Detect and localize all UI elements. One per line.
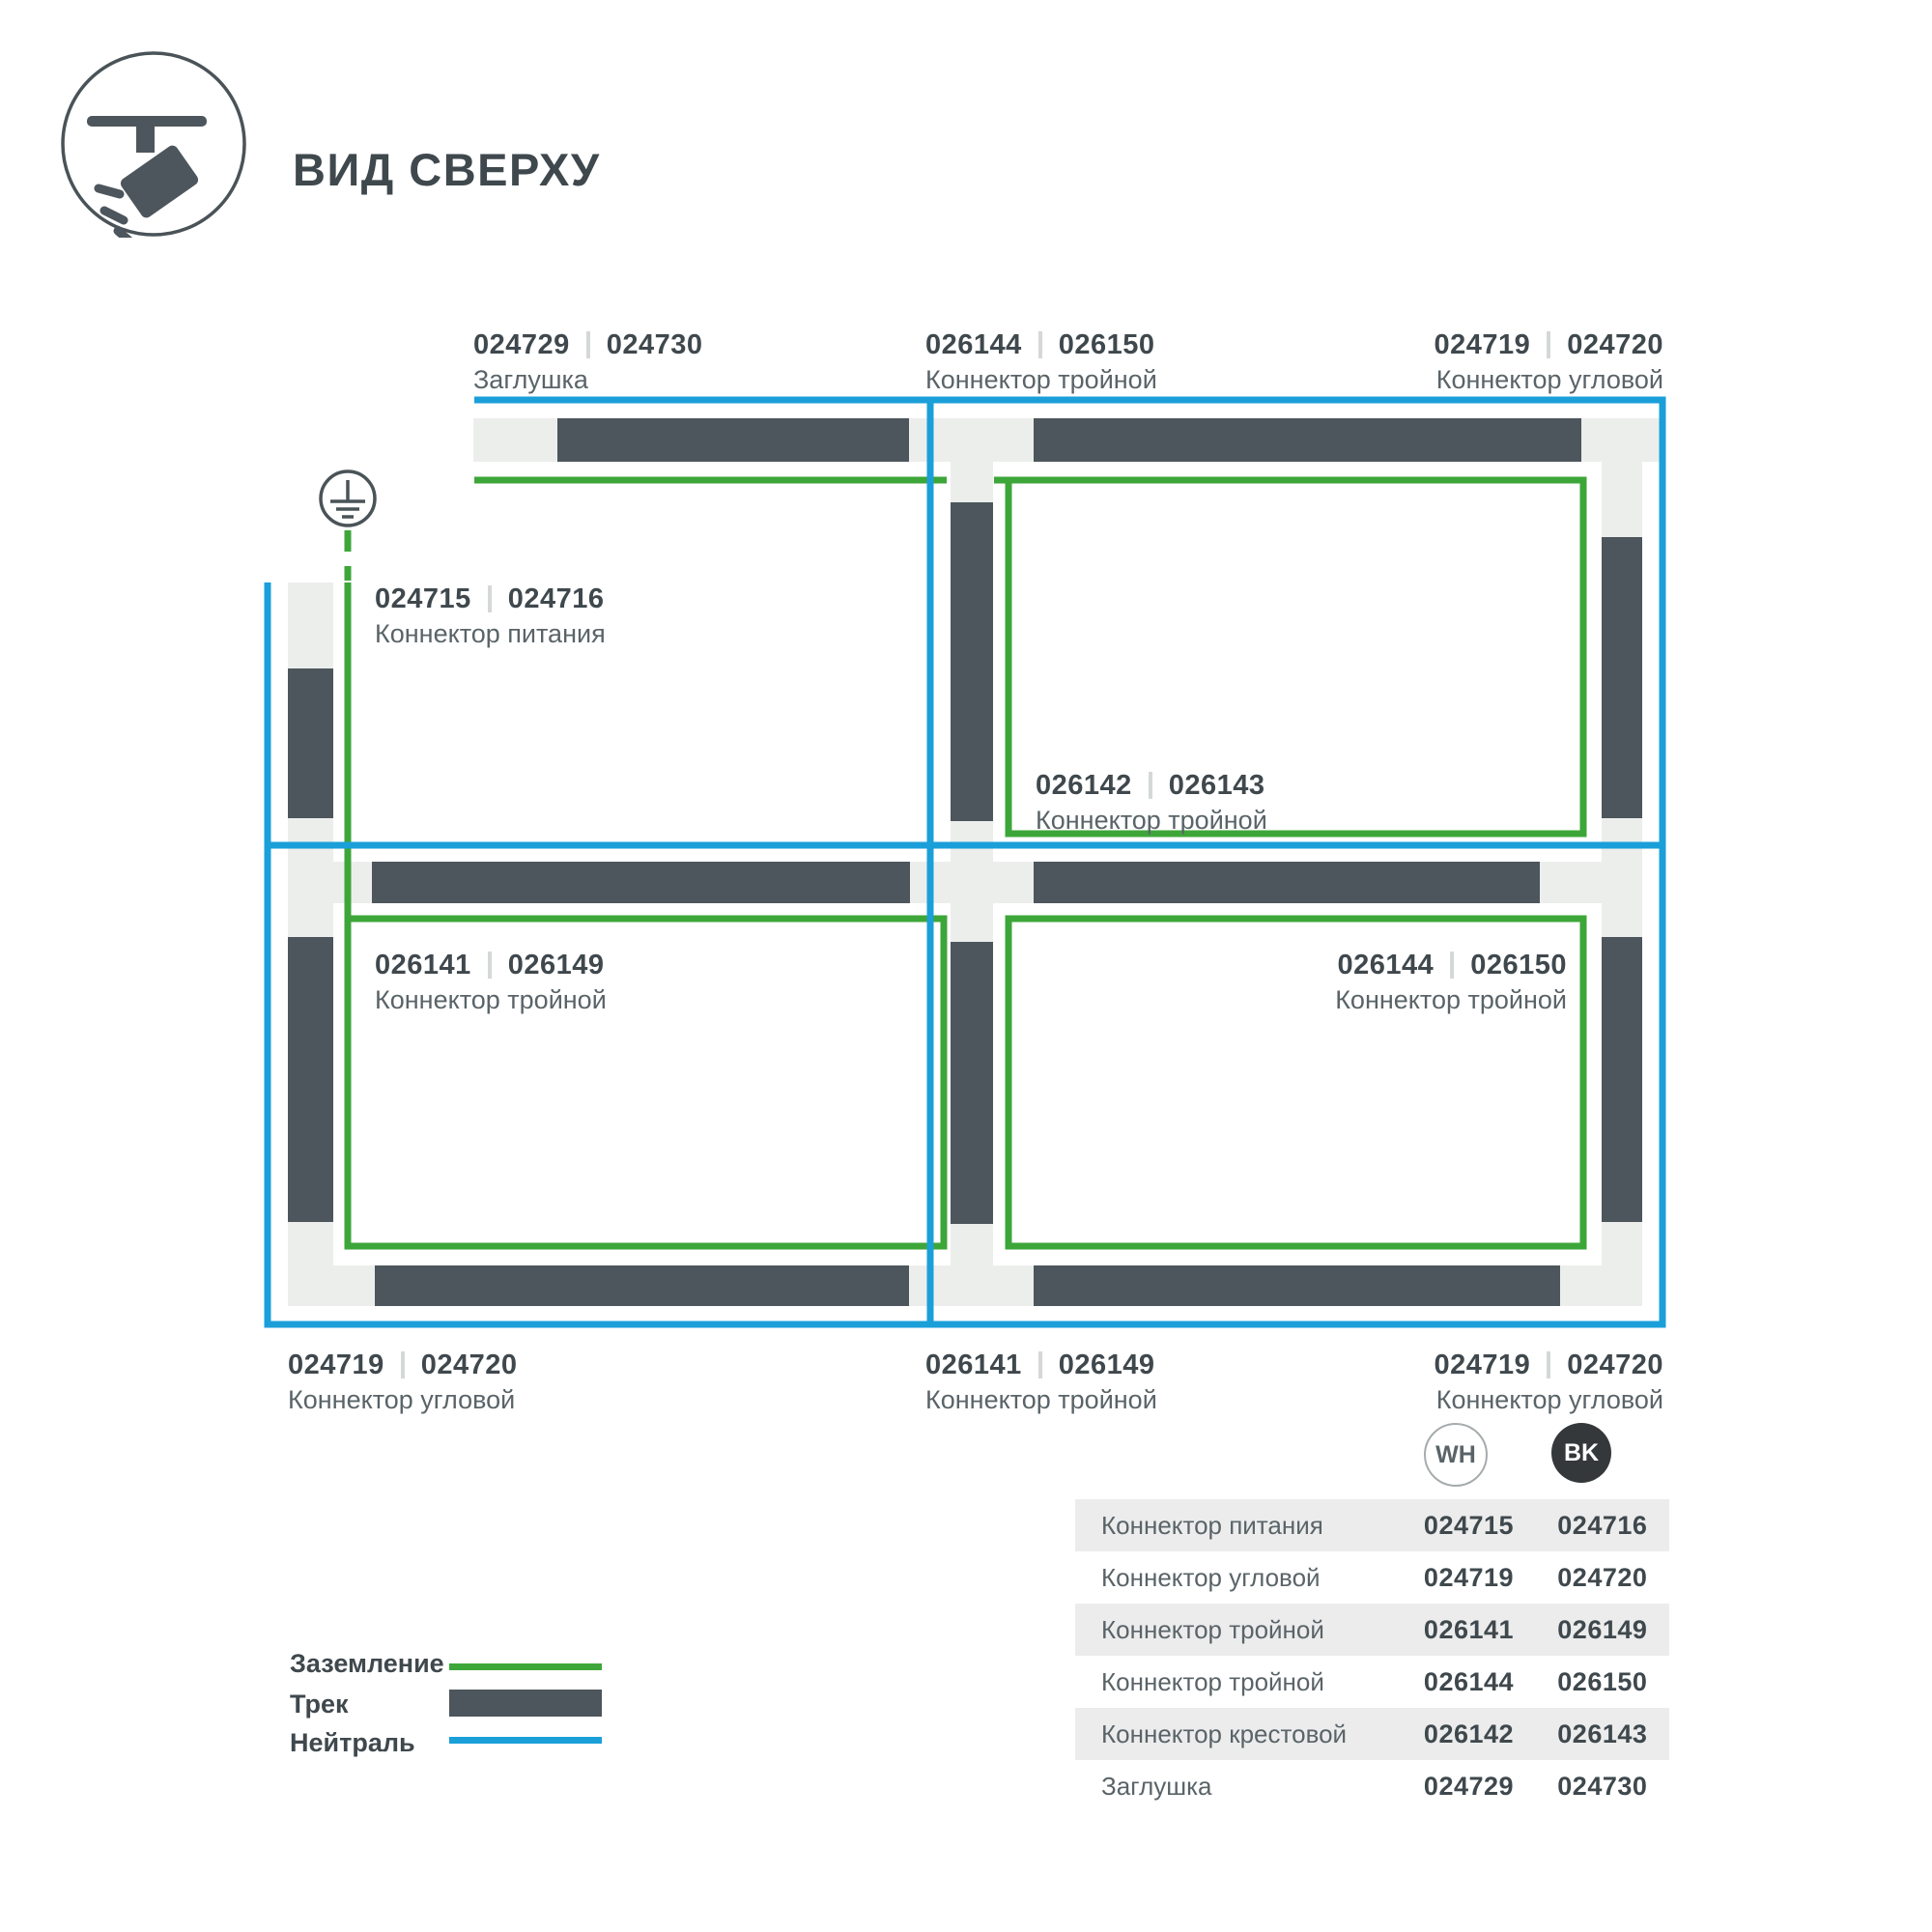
table-row: Заглушка 024729 024730: [1075, 1760, 1669, 1812]
tee-mid-right-block: [1602, 818, 1642, 937]
cross-arm-down: [951, 903, 993, 942]
label-corner-bottom-left: 024719024720 Коннектор угловой: [288, 1350, 518, 1414]
separator: [401, 1351, 405, 1378]
table-row: Коннектор тройной 026144 026150: [1075, 1656, 1669, 1708]
legend-item-track: Трек: [290, 1690, 349, 1719]
corner-tr-leg: [1602, 462, 1642, 537]
label-corner-top-right: 024719024720 Коннектор угловой: [1434, 329, 1663, 394]
power-connector-block: [288, 582, 333, 668]
separator: [1547, 331, 1550, 358]
white-color-badge: WH: [1424, 1423, 1488, 1487]
label-tee-mid-right: 026144026150 Коннектор тройной: [1335, 950, 1567, 1014]
tee-bottom-stub: [951, 1224, 993, 1265]
legend-item-neutral: Нейтраль: [290, 1728, 415, 1758]
black-color-badge: BK: [1551, 1423, 1611, 1483]
separator: [488, 585, 492, 612]
table-row: Коннектор крестовой 026142 026143: [1075, 1708, 1669, 1760]
label-endcap-top: 024729024730 Заглушка: [473, 329, 703, 394]
separator: [1450, 952, 1454, 979]
tee-mid-right-arm: [1540, 862, 1602, 903]
separator: [586, 331, 590, 358]
table-row: Коннектор питания 024715 024716: [1075, 1499, 1669, 1551]
corner-tr-block: [1581, 418, 1662, 462]
tee-mid-left-arm: [333, 862, 372, 903]
label-tee-bottom: 026141026149 Коннектор тройной: [925, 1350, 1157, 1414]
label-cross-center: 026142026143 Коннектор тройной: [1036, 770, 1267, 835]
neutral-line-swatch: [449, 1737, 602, 1744]
legend-item-ground: Заземление: [290, 1649, 444, 1679]
label-corner-bottom-right: 024719024720 Коннектор угловой: [1434, 1350, 1663, 1414]
corner-br-leg: [1602, 1222, 1642, 1306]
parts-table: Коннектор питания 024715 024716 Коннекто…: [1075, 1499, 1669, 1812]
label-power-connector: 024715024716 Коннектор питания: [375, 583, 606, 648]
tee-top-stub: [951, 462, 993, 502]
label-tee-top: 026144026150 Коннектор тройной: [925, 329, 1157, 394]
endcap-block: [473, 418, 557, 462]
separator: [1038, 1351, 1042, 1378]
separator: [488, 952, 492, 979]
separator: [1038, 331, 1042, 358]
track-bar-swatch: [449, 1690, 602, 1717]
corner-bl-block: [288, 1265, 375, 1306]
table-row: Коннектор тройной 026141 026149: [1075, 1604, 1669, 1656]
ground-symbol-icon: [321, 471, 375, 526]
label-tee-mid-left: 026141026149 Коннектор тройной: [375, 950, 607, 1014]
separator: [1547, 1351, 1550, 1378]
separator: [1149, 772, 1152, 799]
page: ВИД СВЕРХУ: [0, 0, 1932, 1932]
table-row: Коннектор угловой 024719 024720: [1075, 1551, 1669, 1604]
tee-mid-left-block: [288, 818, 333, 937]
ground-line-swatch: [449, 1663, 602, 1670]
cross-arm-up: [951, 821, 993, 862]
